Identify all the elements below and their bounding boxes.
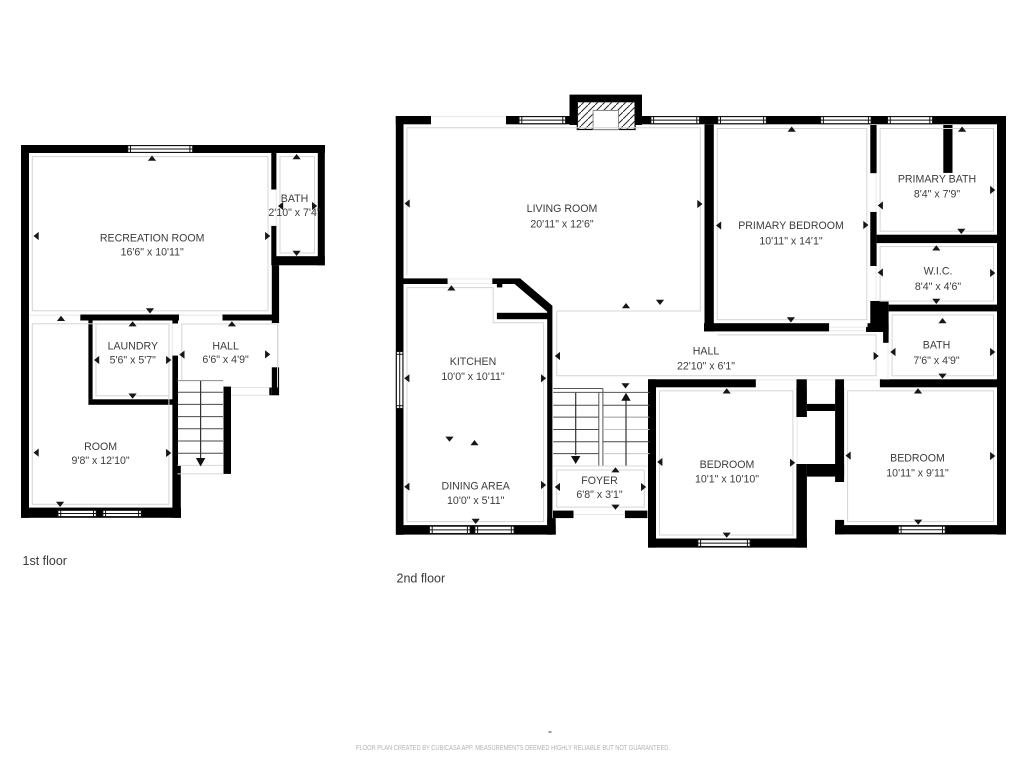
svg-text:PRIMARY BATH: PRIMARY BATH — [898, 173, 976, 185]
svg-text:LAUNDRY: LAUNDRY — [108, 340, 158, 352]
svg-text:7'6" x 4'9": 7'6" x 4'9" — [913, 355, 960, 367]
svg-text:10'1" x 10'10": 10'1" x 10'10" — [695, 473, 759, 485]
svg-text:BATH: BATH — [923, 339, 950, 351]
svg-text:FLOOR PLAN CREATED BY CUBICASA: FLOOR PLAN CREATED BY CUBICASA APP. MEAS… — [356, 743, 670, 752]
svg-text:HALL: HALL — [693, 345, 720, 357]
svg-text:BEDROOM: BEDROOM — [890, 452, 945, 464]
svg-text:W.I.C.: W.I.C. — [924, 265, 953, 277]
svg-text:BATH: BATH — [281, 193, 308, 205]
svg-text:16'6" x 10'11": 16'6" x 10'11" — [121, 247, 184, 259]
svg-text:2nd floor: 2nd floor — [397, 572, 446, 586]
svg-text:1st floor: 1st floor — [23, 554, 67, 568]
svg-text:HALL: HALL — [212, 341, 239, 353]
svg-text:22'10" x 6'1": 22'10" x 6'1" — [677, 360, 735, 372]
svg-text:FOYER: FOYER — [581, 475, 618, 487]
svg-text:LIVING ROOM: LIVING ROOM — [527, 203, 598, 215]
svg-text:BEDROOM: BEDROOM — [700, 459, 755, 471]
svg-text:8'4" x 7'9": 8'4" x 7'9" — [914, 188, 961, 200]
svg-text:10'0" x 10'11": 10'0" x 10'11" — [441, 371, 504, 383]
svg-text:6'8" x 3'1": 6'8" x 3'1" — [576, 489, 623, 501]
svg-text:8'4" x 4'6": 8'4" x 4'6" — [915, 281, 962, 293]
svg-text:DINING AREA: DINING AREA — [442, 480, 511, 492]
svg-text:9'8" x 12'10": 9'8" x 12'10" — [72, 455, 130, 467]
svg-text:6'6" x 4'9": 6'6" x 4'9" — [202, 354, 249, 366]
svg-text:10'11" x 9'11": 10'11" x 9'11" — [886, 467, 949, 479]
svg-text:KITCHEN: KITCHEN — [450, 356, 497, 368]
svg-text:20'11" x 12'6": 20'11" x 12'6" — [530, 218, 593, 230]
svg-text:10'0" x 5'11": 10'0" x 5'11" — [447, 495, 505, 507]
svg-text:ROOM: ROOM — [84, 441, 117, 453]
svg-text:10'11" x 14'1": 10'11" x 14'1" — [759, 235, 822, 247]
svg-text:5'6" x 5'7": 5'6" x 5'7" — [110, 354, 157, 366]
svg-text:RECREATION ROOM: RECREATION ROOM — [100, 233, 205, 245]
svg-text:PRIMARY BEDROOM: PRIMARY BEDROOM — [738, 220, 844, 232]
